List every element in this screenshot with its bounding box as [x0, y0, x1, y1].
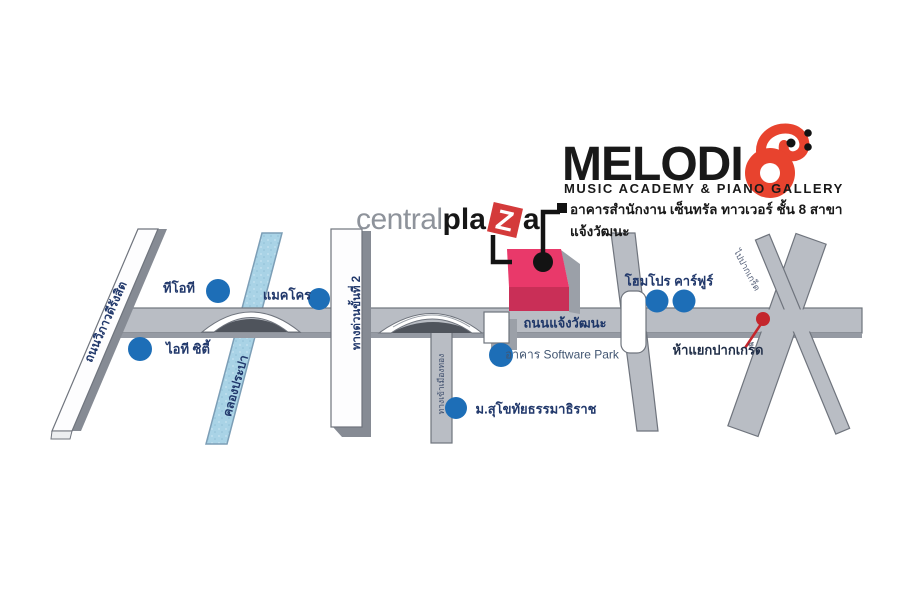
centralplaza-text-pla: pla — [443, 203, 486, 237]
label-pakkret-junction: ห้าแยกปากเกร็ด — [673, 340, 764, 361]
label-road-muangthong: ทางเข้าเมืองทอง — [434, 354, 448, 415]
centralplaza-text-central: central — [356, 203, 443, 237]
label-stou: ม.สุโขทัยธรรมาธิราช — [476, 399, 597, 420]
poi-dot-makro — [308, 288, 330, 310]
poi-dot-it-city — [128, 337, 152, 361]
label-makro: แมคโคร — [263, 285, 311, 306]
poi-dot-carrefour — [673, 290, 696, 313]
junction-merge-patch — [706, 310, 861, 332]
poi-dot-homepro — [646, 290, 669, 313]
map-page: ทีโอที ไอที ซิตี้ แมคโคร อาคาร Software … — [0, 0, 900, 600]
building-marker-dot — [533, 252, 553, 272]
melodio-address-line: อาคารสำนักงาน เซ็นทรัล ทาวเวอร์ ชั้น 8 ส… — [570, 198, 856, 242]
label-software-park: อาคาร Software Park — [505, 346, 619, 365]
label-road-expressway: ทางด่วนขั้นที่ 2 — [348, 276, 366, 350]
homepro-overpass — [621, 291, 646, 353]
centralplaza-text-a: a — [523, 203, 540, 237]
poi-dot-stou — [445, 397, 467, 419]
central-tower-front — [509, 287, 569, 311]
address-connector-bullet — [557, 203, 567, 213]
label-homepro-carrefour: โฮมโปร คาร์ฟูร์ — [625, 271, 713, 292]
software-park-building — [484, 312, 509, 343]
map-canvas — [0, 0, 900, 600]
melodio-tagline: MUSIC ACADEMY & PIANO GALLERY — [564, 181, 844, 196]
pakkret-junction-dot — [756, 312, 770, 326]
road-expressway-endshadow — [333, 427, 371, 437]
label-tot: ทีโอที — [163, 278, 195, 299]
centralplaza-z-icon: Z — [485, 198, 525, 240]
road-vibhavadi-endcap — [51, 431, 72, 439]
label-road-chaengwattana: ถนนแจ้งวัฒนะ — [524, 313, 607, 334]
poi-dot-tot — [206, 279, 230, 303]
label-it-city: ไอที ซิตี้ — [166, 339, 210, 360]
centralplaza-logo: central pla Z a — [356, 195, 540, 237]
